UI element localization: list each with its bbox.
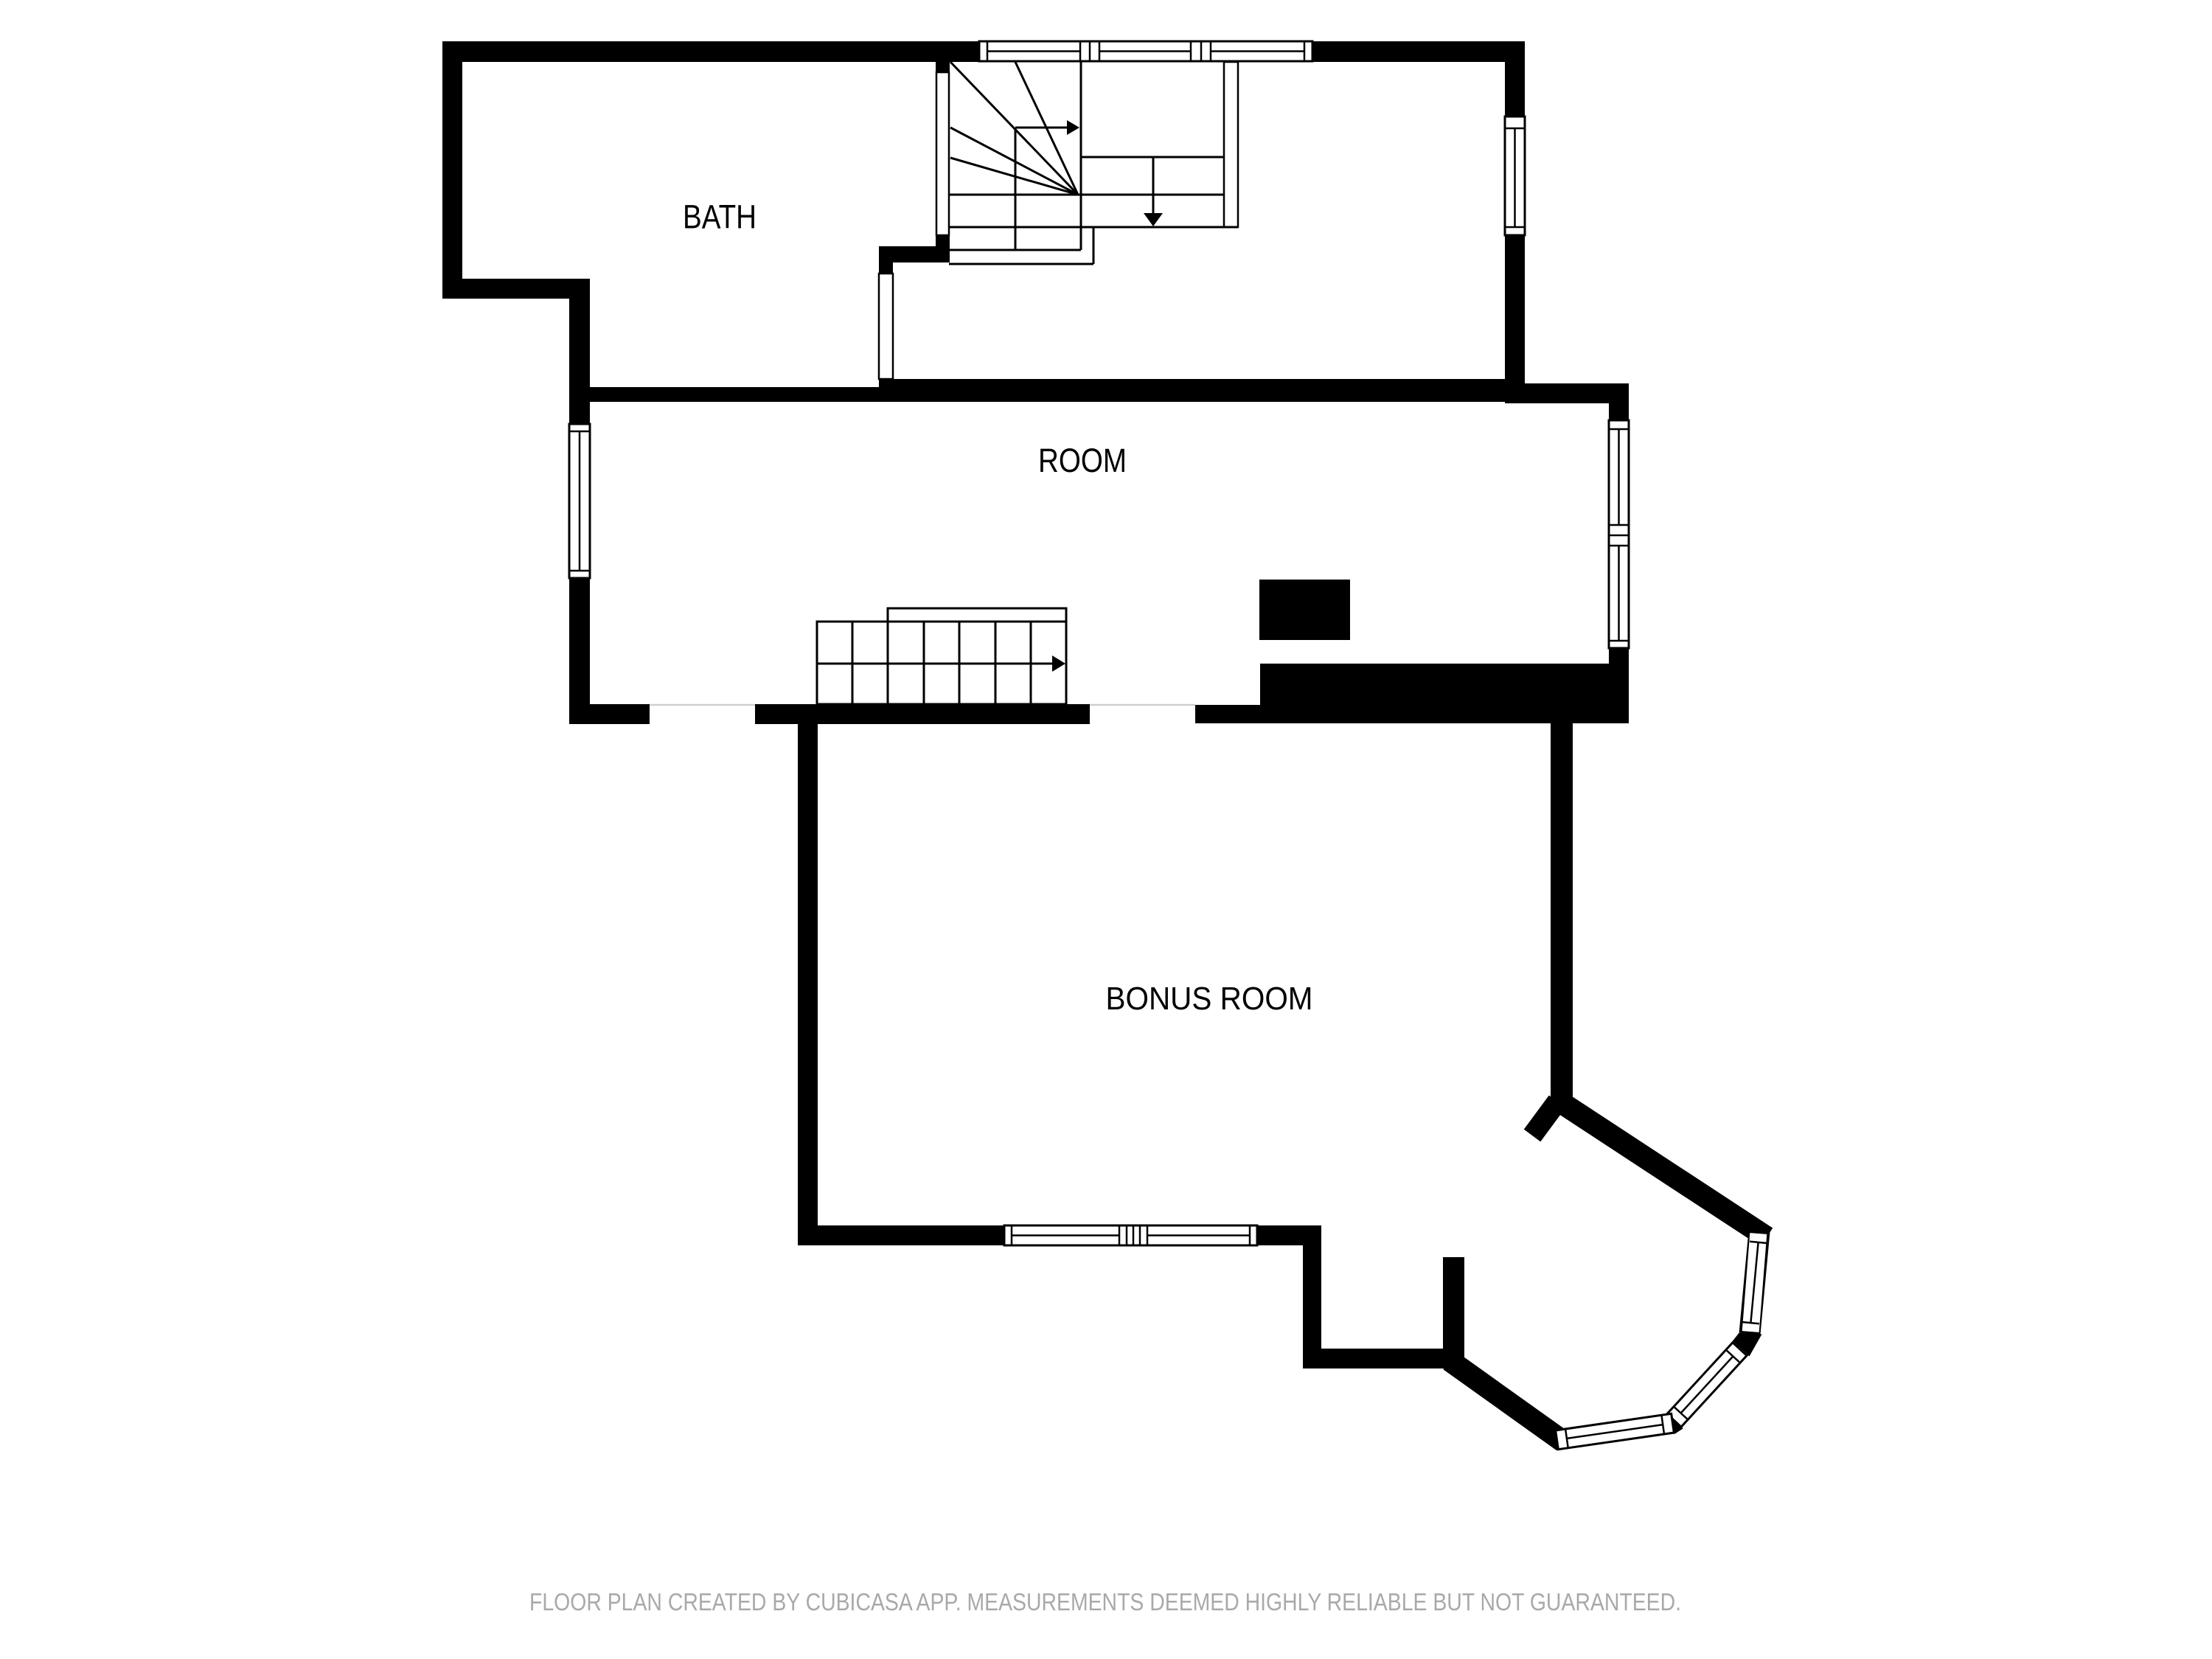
svg-text:FLOOR PLAN CREATED BY CUBICASA: FLOOR PLAN CREATED BY CUBICASA APP. MEAS…: [529, 1588, 1681, 1615]
svg-text:BATH: BATH: [683, 198, 757, 236]
svg-text:BONUS ROOM: BONUS ROOM: [1106, 981, 1313, 1017]
svg-text:ROOM: ROOM: [1038, 442, 1127, 479]
